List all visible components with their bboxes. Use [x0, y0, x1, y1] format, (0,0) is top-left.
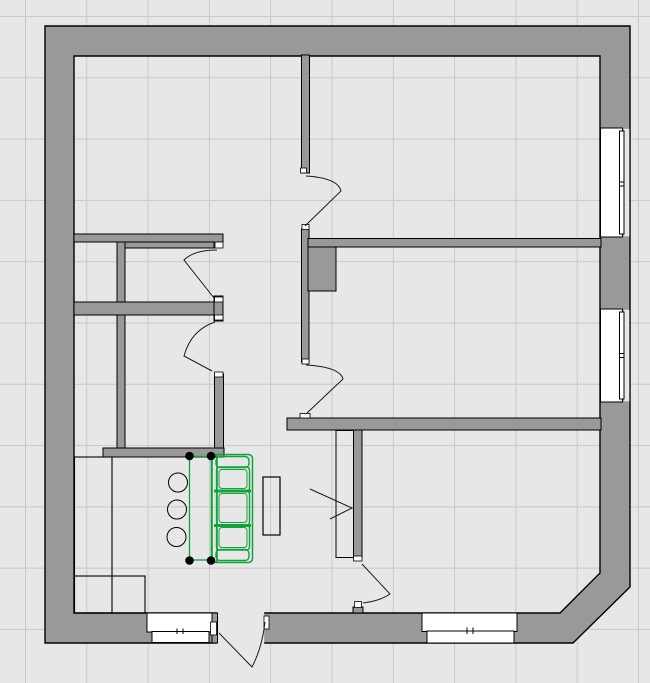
- sofa-cushion-3: [217, 525, 250, 550]
- sofa-armrest-top: [216, 457, 249, 468]
- sofa-armrest-bottom: [216, 550, 249, 561]
- stool-1[interactable]: [169, 473, 188, 492]
- door-jamb-central-mid-bottom: [302, 359, 309, 364]
- window-right-lower-sash: [620, 312, 625, 399]
- wall-closet-vertical[interactable]: [117, 242, 125, 448]
- sofa-selection-box[interactable]: [190, 457, 212, 561]
- entrance-opening: [217, 611, 264, 644]
- wall-living-vertical-stub[interactable]: [354, 430, 363, 558]
- floor-plan-drawing: [0, 0, 650, 683]
- wall-bottom-stub[interactable]: [353, 607, 363, 613]
- selection-handle-top-left[interactable]: [185, 452, 194, 461]
- wall-closet-top[interactable]: [74, 234, 223, 242]
- stool-2[interactable]: [168, 500, 187, 519]
- wall-top-right-divider[interactable]: [308, 239, 601, 248]
- wall-closet-top-inner[interactable]: [117, 242, 214, 248]
- wall-left-lower-vertical[interactable]: [215, 374, 224, 457]
- selection-handle-top-right[interactable]: [207, 452, 216, 461]
- pocket-door-panel[interactable]: [336, 431, 354, 558]
- door-swing-stub[interactable]: [362, 564, 390, 603]
- sofa-cushion-3-inner: [219, 528, 247, 548]
- selection-handle-bottom-left[interactable]: [185, 556, 194, 565]
- door-swing-closet-upper[interactable]: [184, 250, 217, 298]
- kitchen-counter-corner[interactable]: [75, 576, 146, 613]
- window-right-lower-reveal: [624, 310, 630, 402]
- wall-kitchen-top[interactable]: [103, 448, 224, 457]
- window-bottom-left[interactable]: [147, 613, 212, 632]
- window-bottom-right-sash: [427, 631, 514, 643]
- selection-handle-bottom-right[interactable]: [207, 556, 216, 565]
- door-jamb-closet-mid-top: [215, 297, 224, 302]
- door-swing-central-upper[interactable]: [305, 176, 341, 226]
- door-jamb-lower-vertical: [215, 372, 224, 377]
- sofa-cushion-2-inner: [219, 494, 247, 523]
- coffee-table[interactable]: [263, 477, 280, 535]
- door-jamb-bottom-stub-top: [355, 602, 362, 608]
- window-bottom-right[interactable]: [422, 613, 517, 632]
- door-jamb-stub-bottom: [354, 556, 363, 561]
- wall-chimney-block[interactable]: [308, 247, 336, 291]
- door-jamb-closet-top: [215, 242, 223, 248]
- wall-closet-middle[interactable]: [74, 302, 215, 315]
- exterior-wall[interactable]: [45, 26, 630, 643]
- door-jamb-closet-mid-bottom: [215, 315, 224, 320]
- door-jamb-central-upper: [301, 168, 307, 173]
- wall-living-top[interactable]: [287, 418, 601, 430]
- window-bottom-left-sash: [152, 632, 209, 643]
- kitchen-counter-left[interactable]: [75, 457, 113, 613]
- door-swing-central-lower[interactable]: [306, 365, 343, 413]
- sofa-cushion-1-inner: [219, 470, 247, 489]
- sofa-cushion-1: [217, 467, 250, 491]
- door-jamb-entrance-left: [211, 622, 217, 635]
- door-marker-pocket[interactable]: [310, 489, 352, 519]
- sofa-cushion-2: [217, 491, 250, 525]
- floor-plan-canvas[interactable]: [0, 0, 650, 683]
- stool-3[interactable]: [167, 528, 186, 547]
- wall-central-top[interactable]: [302, 55, 310, 173]
- door-jamb-living-top: [300, 414, 310, 419]
- window-right-upper-reveal: [624, 129, 630, 237]
- door-swing-closet-lower[interactable]: [184, 322, 215, 371]
